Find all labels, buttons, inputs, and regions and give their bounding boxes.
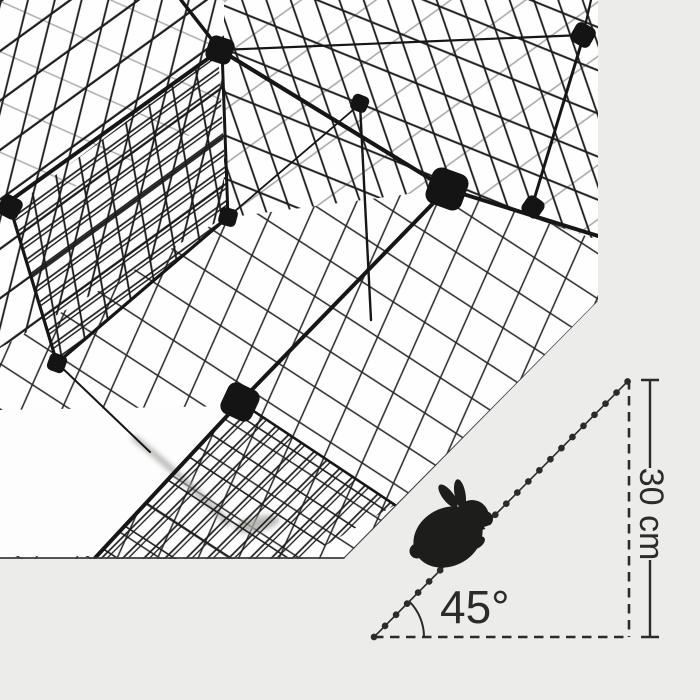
product-photo	[0, 0, 598, 559]
angle-arc	[409, 602, 424, 637]
playpen-ramp-diagram: 45° 30 cm	[0, 0, 700, 700]
product-diagram: 45° 30 cm	[0, 0, 700, 700]
height-label: 30 cm	[632, 468, 670, 561]
angle-label: 45°	[440, 581, 510, 633]
rabbit-silhouette-icon	[403, 478, 496, 579]
